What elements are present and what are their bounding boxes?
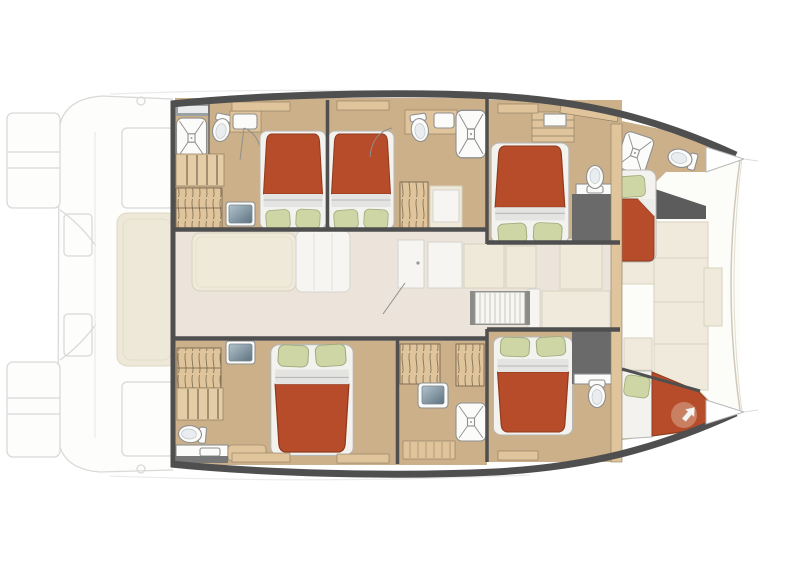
shower — [456, 110, 486, 158]
chart-table — [428, 242, 462, 288]
floor-plan-canvas — [0, 0, 800, 572]
galley-cabinet-1 — [464, 244, 504, 288]
shower — [177, 118, 207, 158]
washbasin — [200, 448, 220, 456]
double-bed — [271, 344, 354, 456]
sunpad-panel-main — [654, 222, 708, 390]
shelf-box — [544, 114, 566, 126]
hanging-wardrobe — [400, 182, 428, 230]
swim-platform-starboard — [7, 362, 60, 457]
starboard-bow-line — [744, 410, 758, 412]
aft-lounge-pad — [117, 213, 177, 366]
swim-platform-port — [7, 113, 60, 208]
double-bed — [491, 143, 569, 244]
saloon-sofa — [296, 231, 350, 292]
bath-shelf-top — [178, 106, 208, 113]
washbasin-bowl — [422, 386, 444, 404]
washbasin — [233, 114, 257, 129]
shower — [456, 403, 486, 441]
double-bed — [493, 336, 572, 435]
sunpad-panel-small — [624, 338, 652, 370]
washbasin — [434, 113, 454, 128]
galley-island — [192, 233, 296, 291]
slatted-deck-hatch — [470, 291, 530, 325]
saloon-aft-counter — [542, 291, 610, 329]
bathroom-floor — [572, 194, 614, 243]
hanging-wardrobe — [400, 344, 440, 384]
hanging-wardrobe — [177, 348, 221, 388]
toilet — [587, 166, 604, 194]
companionway-stairs — [177, 388, 223, 420]
main-bulkhead — [611, 124, 622, 462]
vanity-table-top — [229, 344, 252, 361]
hanging-wardrobe — [456, 344, 484, 386]
open-door-leaf — [398, 240, 424, 288]
galley-cabinet-2 — [506, 246, 536, 288]
slat-bench — [403, 441, 455, 459]
vanity-table-top — [229, 205, 252, 223]
catamaran-floor-plan — [0, 0, 800, 572]
port-bow-line — [744, 159, 758, 161]
double-bed — [328, 131, 394, 230]
bench-cushion — [433, 190, 459, 222]
galley-cabinet-3 — [560, 239, 602, 289]
toilet — [589, 380, 606, 408]
sunpad-panel-side — [704, 268, 722, 326]
hanging-wardrobe — [176, 188, 222, 228]
door-handle — [416, 261, 419, 264]
double-bed — [260, 131, 326, 230]
